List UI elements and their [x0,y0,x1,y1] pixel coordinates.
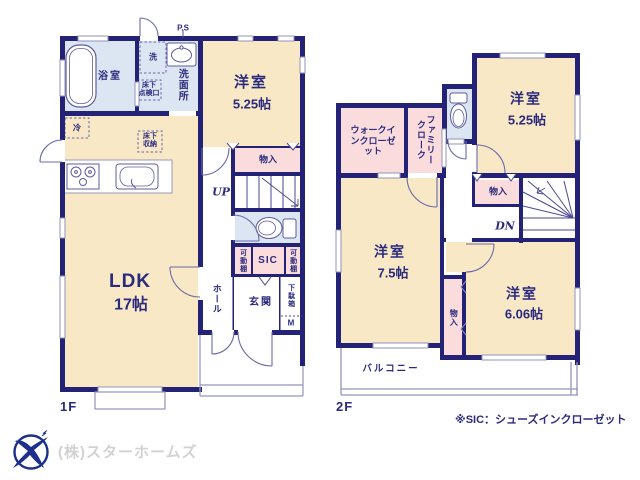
label-stairs-up: UP [212,187,230,200]
kitchen-counter [64,160,172,193]
label-entrance: 玄関 [249,297,273,309]
label-walk-in-closet: ウォークインクローゼット [350,125,396,157]
sic-footnote: ※SIC：シューズインクローゼット [455,414,626,427]
door-backdoor-top [140,18,158,41]
label-closet-2f-lower: 物入 [449,309,457,327]
room-label-western-2f-b: 洋室 [374,244,406,261]
label-washer: 洗 [149,52,157,61]
label-shoe-box-mirror: M [288,318,295,327]
label-underfloor-hatch: 床下 点検口 [139,82,160,99]
floor-label-1f: 1F [60,399,77,414]
room-size-western-2f-a: 5.25帖 [508,112,546,127]
room-label-western-2f-a: 洋室 [510,91,542,108]
washbasin-icon [167,43,196,66]
stove-icon [67,164,99,189]
room-size-western-2f-b: 7.5帖 [377,265,408,280]
label-fridge: 冷 [73,123,81,132]
label-bathroom: 浴室 [98,71,122,83]
label-washroom: 洗面所 [176,69,187,102]
toilet-1f-icon [256,218,296,239]
logo-bird-icon [13,431,48,469]
label-balcony: バルコニー [362,363,419,374]
stairs-up-1f [247,176,298,208]
stairs-down-2f [523,181,575,230]
door-kitchen-left [40,140,65,162]
door-western-1f [202,148,229,175]
room-size-ldk: 17帖 [114,297,148,316]
label-sic: SIC [258,255,278,267]
label-shelf-right: 可動棚 [289,249,296,273]
floor-plan-page: P.S 浴室 洗 洗面所 床下 点検口 冷 床下 収納 洋室 5.25帖 物入 … [0,0,640,480]
floor-label-2f: 2F [336,399,353,414]
label-stairs-down: DN [495,221,515,234]
company-name: (株)スターホームズ [58,444,198,462]
room-label-ldk: LDK [109,271,151,293]
door-entrance-small [212,332,234,354]
label-hall: ホール [211,284,220,314]
toilet-2f-icon [450,93,467,128]
floor-plan-drawing [0,0,640,480]
door-entrance-main [238,332,272,366]
room-size-western-1f: 5.25帖 [233,96,271,111]
label-shoe-box: 下駄箱 [287,284,294,308]
room-label-western-2f-c: 洋室 [506,286,538,303]
label-shelf-left: 可動棚 [239,249,246,273]
label-closet-1f: 物入 [259,155,277,166]
label-closet-2f-upper: 物入 [489,187,507,198]
label-underfloor-storage: 床下 収納 [143,133,157,150]
label-ps: P.S [177,23,189,32]
room-label-western-1f: 洋室 [234,74,268,92]
room-size-western-2f-c: 6.06帖 [505,306,543,321]
label-family-cloak: ファミリークローク [416,115,435,165]
bathtub-icon [66,45,96,107]
sink-icon [116,164,158,189]
